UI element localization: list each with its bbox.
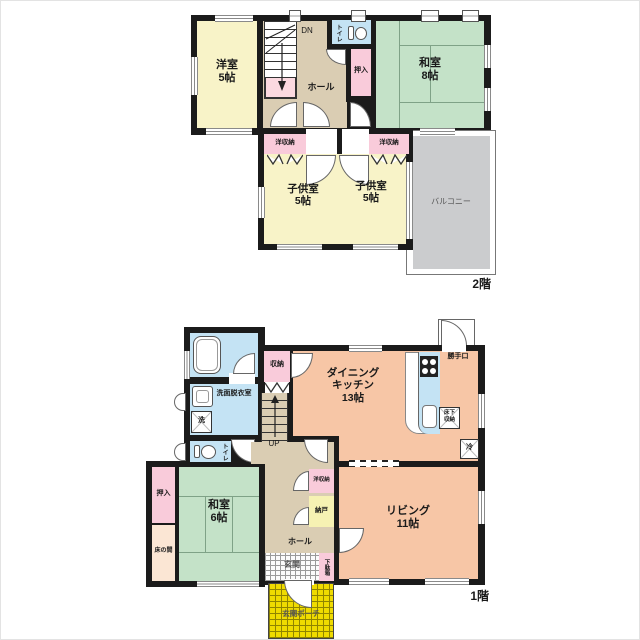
kitchen-sink-icon xyxy=(422,405,437,428)
toilet-tank-icon-2f xyxy=(348,26,354,40)
bifold-door-icon-storage-1f xyxy=(265,382,289,393)
window xyxy=(351,10,366,22)
room-label-japanese-room-1f: 和室6帖 xyxy=(184,499,254,525)
window xyxy=(349,578,389,585)
window xyxy=(425,578,469,585)
doorway-bath xyxy=(229,373,255,384)
window-balcony-door xyxy=(406,162,413,239)
window xyxy=(421,10,439,22)
room-label-closet-1f: 押入 xyxy=(152,490,175,498)
floor-label-1f: 1階 xyxy=(451,589,489,603)
washer-label: 洗 xyxy=(191,417,212,425)
room-label-living: リビング11帖 xyxy=(373,505,443,531)
back-door-label: 勝手口 xyxy=(439,353,477,361)
tatami-line xyxy=(179,552,259,553)
window xyxy=(484,45,491,68)
doorway-back-door xyxy=(442,345,466,352)
bathtub-icon xyxy=(193,336,221,374)
room-label-toilet-2f: トイレ xyxy=(334,21,341,45)
window xyxy=(184,351,190,379)
stair-arrow-1f-icon xyxy=(261,393,288,442)
tatami-line xyxy=(179,496,259,497)
stair-label-up: UP xyxy=(259,439,289,448)
window xyxy=(215,15,253,22)
window xyxy=(478,491,485,524)
room-label-japanese-room-2f: 和室8帖 xyxy=(395,57,465,83)
window xyxy=(258,187,265,218)
underfloor-storage-label: 床下収納 xyxy=(439,410,460,424)
floor-plan-canvas: 洋室5帖 和室8帖 ホール DN トイレ 押入 洋収納 洋収納 子供室5帖 子供… xyxy=(0,0,640,640)
casement-swing-toilet-1f xyxy=(174,443,186,461)
stove-icon xyxy=(420,356,438,377)
window xyxy=(197,581,259,587)
room-label-hall-2f: ホール xyxy=(298,82,344,93)
toilet-tank-icon-1f xyxy=(194,445,200,458)
room-label-tokonoma: 床の間 xyxy=(150,548,177,555)
room-label-storage-left-2f: 洋収納 xyxy=(264,139,306,147)
window-balcony-door xyxy=(420,128,455,135)
tatami-line xyxy=(399,102,484,103)
window xyxy=(462,10,479,22)
room-label-western-room-2f: 洋室5帖 xyxy=(199,59,255,85)
room-label-hall-1f: ホール xyxy=(278,537,322,546)
fridge-label: 冷 xyxy=(460,444,479,452)
toilet-bowl-icon-1f xyxy=(201,445,216,459)
bifold-door-icon-left xyxy=(267,154,303,165)
window xyxy=(349,345,382,352)
room-label-child-room-left: 子供室5帖 xyxy=(273,183,333,208)
room-label-washroom: 洗面脱衣室 xyxy=(210,390,258,398)
shoe-cabinet-label: 下駄箱 xyxy=(323,554,329,580)
room-label-storage-right-2f: 洋収納 xyxy=(369,139,409,147)
stair-label-dn: DN xyxy=(297,26,317,35)
room-label-toilet-1f: トイレ xyxy=(220,442,227,462)
window xyxy=(191,57,198,95)
room-label-balcony: バルコニー xyxy=(421,197,481,206)
room-dining-kitchen-lower xyxy=(339,436,478,461)
room-label-western-storage-1f: 洋収納 xyxy=(309,477,334,483)
room-label-entrance: 玄関 xyxy=(273,560,311,569)
toilet-bowl-icon-2f xyxy=(355,27,367,40)
room-label-dining-kitchen: ダイニングキッチン13帖 xyxy=(313,367,393,404)
stair-arrow-2f-icon xyxy=(264,21,297,99)
window xyxy=(206,128,252,135)
window xyxy=(353,244,398,250)
bifold-door-icon-right xyxy=(371,154,407,165)
wall-stub-children xyxy=(337,129,342,155)
porch-label: 玄関ポーチ xyxy=(271,610,331,619)
room-label-storage-1f: 収納 xyxy=(264,361,290,369)
room-label-child-room-right: 子供室5帖 xyxy=(341,180,401,205)
room-label-storeroom: 納戸 xyxy=(309,507,334,515)
casement-swing-washroom xyxy=(174,393,186,411)
room-label-closet-2f: 押入 xyxy=(351,67,371,75)
window xyxy=(289,10,301,22)
window xyxy=(478,394,485,428)
window xyxy=(484,88,491,111)
tatami-line xyxy=(399,45,484,46)
floor-label-2f: 2階 xyxy=(453,277,491,291)
window xyxy=(277,244,322,250)
